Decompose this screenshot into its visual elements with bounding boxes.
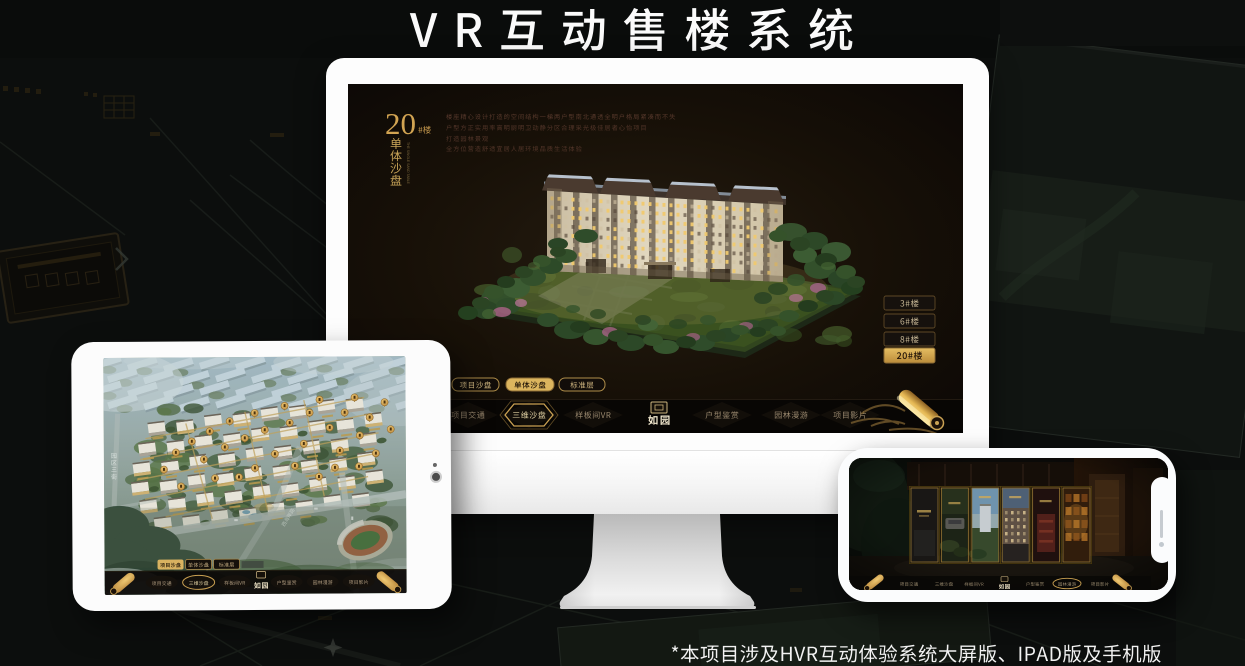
svg-text:20: 20 (385, 106, 416, 141)
svg-text:THE SINGLE SAND TABLE: THE SINGLE SAND TABLE (406, 142, 410, 185)
